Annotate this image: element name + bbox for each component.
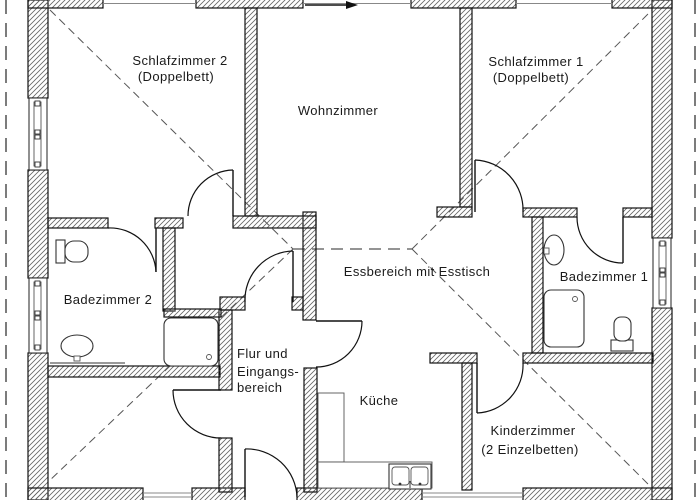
room-label-flur-line3: bereich <box>237 380 282 395</box>
shower-icon <box>544 290 584 347</box>
window-icon <box>653 238 671 308</box>
wall <box>652 0 672 238</box>
wall <box>28 488 143 500</box>
wall <box>28 170 48 278</box>
wall <box>612 0 672 8</box>
toilet-icon <box>56 240 88 263</box>
wall <box>220 297 245 310</box>
wall <box>28 0 103 8</box>
wall <box>163 228 175 311</box>
wall <box>460 8 472 207</box>
room-label-schlafzimmer1-sub: (Doppelbett) <box>493 70 569 85</box>
wall <box>652 308 672 500</box>
sink-icon <box>544 235 564 265</box>
room-label-flur: Flur und <box>237 346 288 361</box>
wall <box>28 0 48 98</box>
wall <box>219 438 232 492</box>
room-label-flur-line2: Eingangs- <box>237 364 299 379</box>
wall <box>623 208 652 217</box>
room-label-kinderzimmer-sub: (2 Einzelbetten) <box>481 442 578 457</box>
kitchen-sink-icon <box>389 464 431 489</box>
wall <box>523 208 577 217</box>
wall <box>523 353 653 363</box>
room-label-badezimmer1: Badezimmer 1 <box>560 269 649 284</box>
room-label-schlafzimmer1: Schlafzimmer 1 <box>488 54 583 69</box>
room-label-kueche: Küche <box>360 393 399 408</box>
window-icon <box>29 278 47 353</box>
wall <box>164 309 221 317</box>
floorplan-page: Schlafzimmer 2 (Doppelbett) Wohnzimmer S… <box>0 0 700 500</box>
wall <box>48 366 220 377</box>
wall <box>411 0 516 8</box>
wall <box>233 216 316 228</box>
room-label-schlafzimmer2-sub: (Doppelbett) <box>138 69 214 84</box>
wall <box>48 218 108 228</box>
toilet-icon <box>611 317 633 351</box>
floorplan-svg: Schlafzimmer 2 (Doppelbett) Wohnzimmer S… <box>0 0 700 500</box>
wall <box>304 368 317 492</box>
wall <box>245 8 257 216</box>
room-label-essbereich: Essbereich mit Esstisch <box>344 264 490 279</box>
wall <box>196 0 303 8</box>
wall <box>437 207 472 217</box>
room-label-kinderzimmer: Kinderzimmer <box>491 423 576 438</box>
room-label-badezimmer2: Badezimmer 2 <box>64 292 153 307</box>
wall <box>523 488 672 500</box>
wall <box>430 353 477 363</box>
wall <box>219 310 232 390</box>
window-icon <box>29 98 47 170</box>
wall <box>532 217 543 353</box>
wall <box>462 363 472 490</box>
wall <box>155 218 183 228</box>
wall <box>28 353 48 500</box>
room-label-schlafzimmer2: Schlafzimmer 2 <box>132 53 227 68</box>
paper-background <box>0 0 700 500</box>
room-label-wohnzimmer: Wohnzimmer <box>298 103 379 118</box>
shower-icon <box>164 318 218 366</box>
